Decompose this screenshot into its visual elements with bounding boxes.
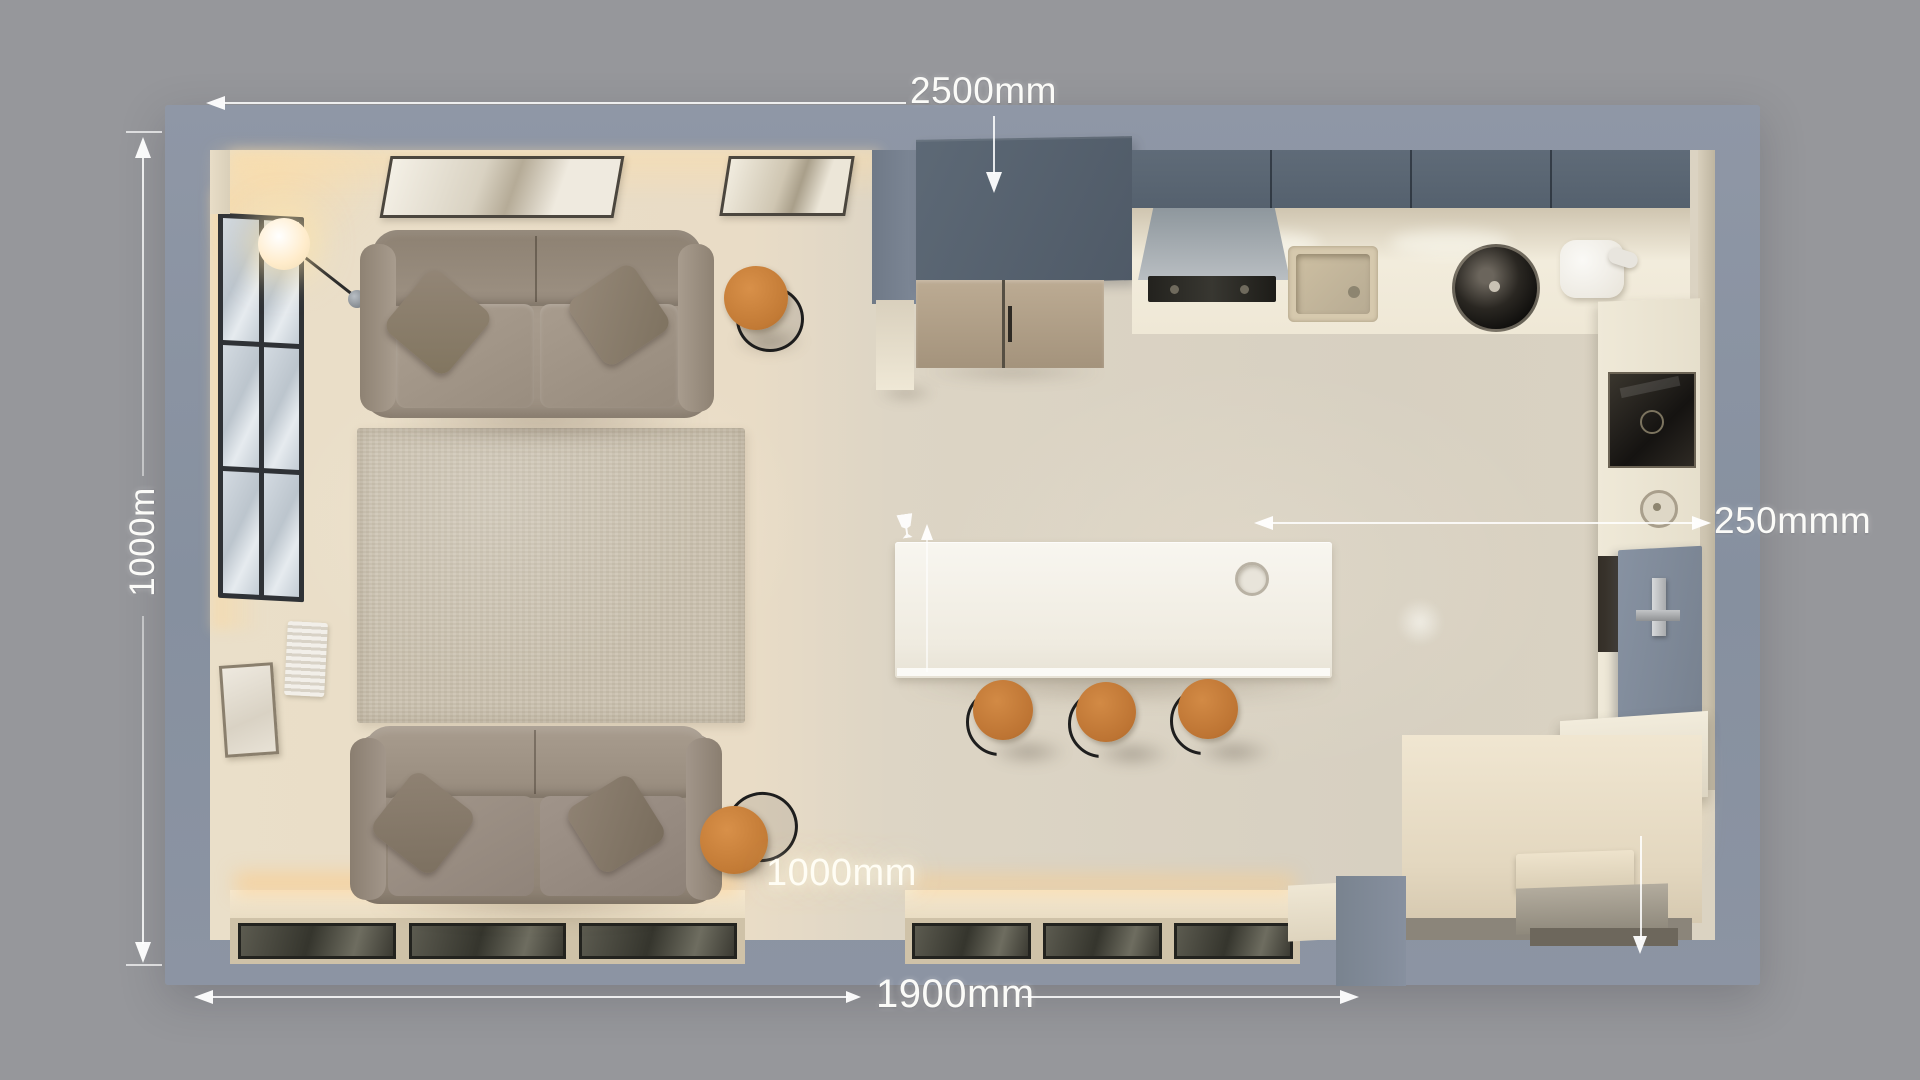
top-dim-label: 2500mm (910, 70, 1057, 112)
kitchen-floor-glazing (905, 918, 1300, 964)
top-dim-drop-line (993, 116, 995, 174)
bottom-dim-label: 1900mm (876, 972, 1035, 1017)
wall-art-large (380, 156, 625, 218)
radiator (284, 621, 328, 697)
bottom-dim-line-right (1022, 996, 1340, 998)
island-dim-line (926, 540, 928, 672)
right-dim-arrow-left (1254, 516, 1273, 530)
window-pane (264, 347, 300, 471)
stool-shadow (1092, 740, 1172, 768)
island-dim-arrow-up (921, 524, 933, 540)
window-pane (223, 471, 259, 595)
walkway-dim-label: 1000mm (766, 852, 917, 895)
left-dim-line-upper (142, 158, 144, 476)
sink-basin (1296, 254, 1370, 314)
tall-cabinet (916, 136, 1132, 284)
corner-step-base (1530, 928, 1678, 946)
glazing-panel (238, 923, 396, 959)
left-dim-tick-bottom (126, 964, 162, 966)
top-dim-arrow-left (206, 96, 225, 110)
right-dim-label: 250mmm (1714, 500, 1871, 542)
pot-lid-handle (1489, 281, 1500, 292)
upper-cabinets (1132, 150, 1690, 208)
glazing-panel (579, 923, 737, 959)
bar-stool-2 (1076, 682, 1136, 742)
living-floor-glazing (230, 918, 745, 964)
stool-shadow (988, 738, 1068, 766)
glazing-panel (409, 923, 567, 959)
chrome-tap (1652, 578, 1666, 636)
bottom-dim-arrow-mid (846, 991, 861, 1003)
stool-shadow (1194, 738, 1274, 766)
window-pane (264, 473, 300, 597)
left-dim-label: 1000m (123, 461, 163, 623)
corner-step-lower (1516, 883, 1668, 934)
sofa-back-seam (534, 730, 536, 794)
burner-knob (1240, 285, 1249, 294)
floor-lamp-globe (258, 218, 310, 270)
left-dim-tick-top (126, 131, 162, 133)
right-dim-line (1272, 522, 1694, 524)
island-front-edge (897, 668, 1330, 676)
partition-pillar (876, 300, 914, 390)
window-left (218, 213, 304, 603)
island-sink (1235, 562, 1269, 596)
kitchen-window-sill (905, 890, 1300, 920)
oven-glare (1620, 376, 1681, 398)
corner-pilaster (210, 150, 230, 214)
burner-knob (1170, 285, 1179, 294)
sink-faucet (1348, 286, 1360, 298)
bottom-dim-line-left (212, 996, 848, 998)
floor-plan-canvas: { "scene": { "type": "apartment-floor-pl… (0, 0, 1920, 1080)
bottom-dim-arrow-left (194, 990, 213, 1004)
cabinet-door-seam (1002, 280, 1005, 368)
left-dim-arrow-down (135, 942, 151, 963)
window-pane (223, 218, 259, 342)
left-dim-arrow-up (135, 137, 151, 158)
sofa-lower (352, 726, 720, 906)
sofa-arm (678, 244, 714, 412)
side-table-lower (700, 806, 768, 874)
glazing-panel (1043, 923, 1162, 959)
partition-wall (872, 150, 916, 304)
gray-base-cabinet (1618, 546, 1702, 734)
cooktop (1148, 276, 1276, 302)
oven-dial (1640, 410, 1664, 434)
area-rug (357, 428, 745, 723)
window-pane (223, 345, 259, 469)
chrome-tap-spout (1636, 610, 1680, 621)
cabinet-handle (1008, 306, 1012, 342)
bar-stool-1 (973, 680, 1033, 740)
kitchen-island (895, 542, 1332, 678)
oven (1608, 372, 1696, 468)
counter-sink (1288, 246, 1378, 322)
fixture-dot (1653, 503, 1661, 511)
step-dim-arrow-down (1633, 936, 1647, 954)
right-dim-arrow-right (1692, 516, 1711, 530)
step-dim-line (1640, 836, 1642, 940)
top-dim-line (224, 102, 906, 104)
side-table-upper (724, 266, 788, 330)
leaning-picture-frame (219, 662, 279, 758)
range-hood (1138, 208, 1290, 280)
bottom-dim-arrow-right (1340, 990, 1359, 1004)
glazing-panel (912, 923, 1031, 959)
left-dim-line-lower (142, 616, 144, 944)
glazing-panel (1174, 923, 1293, 959)
fridge-cabinet (916, 280, 1104, 368)
wall-stub (1336, 876, 1406, 986)
sofa-back-seam (535, 236, 537, 302)
sofa-upper (362, 230, 712, 420)
stock-pot (1452, 244, 1540, 332)
wall-art-small (719, 156, 855, 216)
bar-stool-3 (1178, 679, 1238, 739)
top-dim-arrow-down (986, 172, 1002, 193)
